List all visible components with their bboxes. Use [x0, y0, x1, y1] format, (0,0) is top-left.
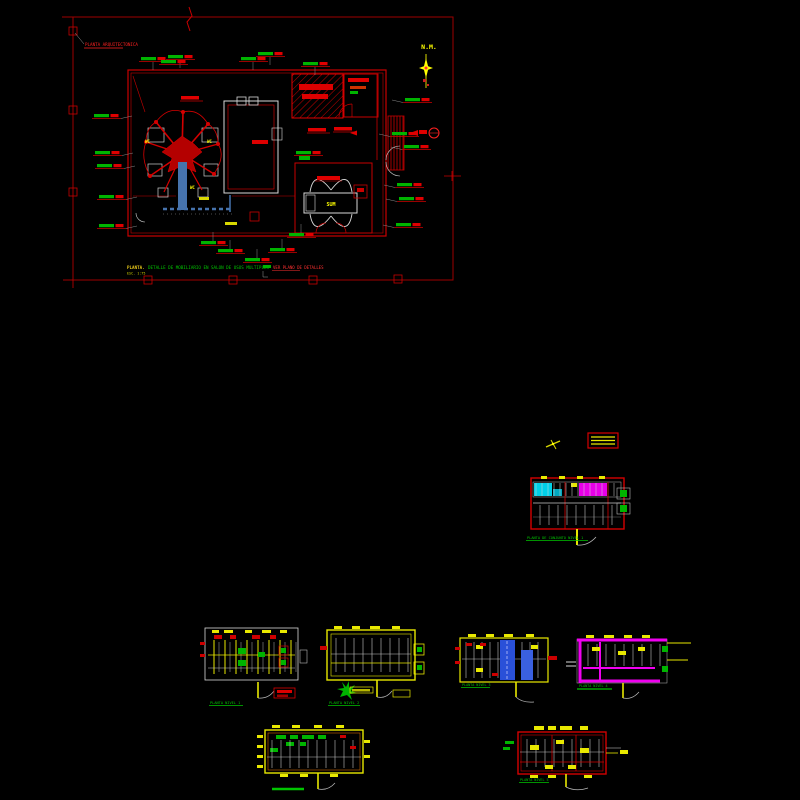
north-label: N.M.	[421, 43, 437, 51]
cad-rect	[548, 775, 556, 778]
cad-rect	[340, 735, 346, 738]
callout-leader	[383, 225, 394, 228]
cad-rect	[228, 105, 274, 189]
cad-rect	[230, 635, 236, 639]
cad-rect	[364, 755, 370, 758]
callout-text-red	[116, 224, 124, 227]
plan-e	[257, 725, 370, 789]
cad-rect	[417, 665, 422, 670]
door-arc	[316, 223, 326, 233]
cad-circle	[212, 172, 216, 176]
cad-circle	[216, 142, 220, 146]
cad-rect	[548, 656, 557, 660]
cad-rect	[592, 647, 600, 651]
cad-rect	[300, 742, 306, 746]
cad-rect	[318, 735, 326, 739]
cad-rect	[468, 634, 476, 637]
callout-text-red	[112, 151, 120, 154]
cad-rect	[302, 94, 328, 99]
cad-rect	[586, 635, 594, 638]
cad-rect	[476, 668, 483, 672]
callout-text-green	[241, 57, 256, 60]
callout-text-green	[141, 57, 156, 60]
cad-rect	[599, 476, 605, 479]
callout-text-green	[201, 241, 216, 244]
cad-rect	[263, 265, 271, 268]
callout-label	[392, 98, 432, 103]
callout-text-green	[405, 98, 420, 101]
plan-b: PLANTA NIVEL 2	[320, 626, 424, 706]
cad-rect	[306, 195, 315, 211]
callout-text-green	[289, 233, 304, 236]
cad-rect	[427, 84, 429, 86]
cad-rect	[534, 726, 544, 730]
plan-f-border	[518, 732, 606, 774]
cad-rect	[245, 630, 252, 633]
callout-leader	[121, 116, 132, 119]
main-title-scale: ESC. 1:75	[127, 272, 145, 276]
cad-rect	[300, 650, 307, 663]
arrow-symbol	[350, 131, 357, 136]
cad-rect	[584, 775, 592, 778]
cad-rect	[568, 765, 576, 769]
cad-circle	[181, 110, 185, 114]
callout-label	[199, 232, 228, 246]
door-arc	[336, 223, 346, 233]
cad-rect	[638, 647, 645, 651]
callout-text-red	[185, 55, 193, 58]
cad-rect	[352, 689, 370, 692]
sheet2-caption: PLANTA DE CONJUNTO NIVEL 1	[527, 536, 583, 540]
red-callout-label	[180, 96, 203, 101]
cad-rect	[252, 635, 260, 639]
cad-rect	[503, 747, 510, 750]
dining-room: SUM	[295, 156, 372, 233]
cad-rect	[560, 726, 572, 730]
plan-b-border	[327, 630, 415, 680]
cad-rect	[334, 626, 342, 629]
callout-text-green	[258, 52, 273, 55]
cad-rect	[620, 750, 628, 754]
cad-rect	[250, 212, 259, 221]
callout-label	[239, 57, 268, 70]
callout-text-red	[116, 195, 124, 198]
callout-leader	[392, 100, 403, 103]
callout-text-green	[168, 55, 183, 58]
plan-f: PLANTA NIVEL 5	[503, 726, 628, 790]
cad-rect	[419, 130, 427, 134]
callout-text-green	[245, 258, 260, 261]
cad-rect	[272, 128, 282, 140]
cad-rect	[200, 654, 205, 657]
cad-path	[516, 697, 534, 702]
fold-mark	[187, 7, 192, 31]
callout-text-green	[303, 62, 318, 65]
main-title-block: PLANTA.DETALLE DE MOBILIARIO EN SALON DE…	[127, 265, 324, 277]
cad-rect	[272, 725, 280, 728]
cad-rect	[299, 84, 333, 90]
cad-rect	[392, 626, 400, 629]
callout-text-green	[397, 183, 412, 186]
cad-path	[623, 692, 639, 698]
cad-rect	[500, 640, 515, 680]
main-title: DETALLE DE MOBILIARIO EN SALON DE USOS M…	[148, 265, 269, 270]
cad-rect	[480, 643, 486, 646]
cad-rect	[257, 735, 263, 738]
cad-rect	[238, 660, 246, 666]
cad-rect	[276, 735, 286, 739]
red-callout-label	[307, 128, 330, 133]
cad-rect	[350, 91, 358, 94]
wc-label: WC	[190, 185, 195, 190]
red-callout-label	[333, 127, 356, 132]
corner-label: PLANTA ARQUITECTONICA	[75, 33, 138, 48]
plan-d: PLANTA NIVEL 4	[566, 635, 691, 698]
cad-rect	[505, 741, 514, 744]
callout-text-red	[421, 145, 429, 148]
cad-rect	[158, 188, 168, 197]
cad-rect	[277, 695, 288, 698]
main-title-prefix: PLANTA.	[127, 265, 145, 270]
cad-path	[258, 691, 274, 698]
table-label: SUM	[326, 202, 335, 208]
cad-rect	[423, 79, 426, 82]
cad-line	[133, 76, 145, 112]
callout-label	[95, 164, 135, 169]
cad-rect	[270, 635, 276, 639]
cad-rect	[357, 188, 364, 192]
cad-rect	[348, 78, 369, 82]
cad-rect	[580, 726, 588, 730]
cad-path	[156, 110, 183, 122]
cad-rect	[277, 690, 292, 693]
cad-rect	[526, 634, 534, 637]
sheet2: PLANTA DE CONJUNTO NIVEL 1	[526, 433, 630, 545]
cad-rect	[662, 666, 668, 672]
callout-text-red	[414, 183, 422, 186]
plan-d-caption: PLANTA NIVEL 4	[579, 684, 608, 688]
callout-text-green	[99, 224, 114, 227]
cad-rect	[350, 86, 366, 89]
cad-rect	[280, 630, 287, 633]
plan-a-caption: PLANTA NIVEL 1	[210, 701, 240, 705]
callout-text-red	[235, 249, 243, 252]
cad-path	[183, 111, 208, 124]
plan-b-caption: PLANTA NIVEL 2	[329, 701, 359, 705]
callout-text-red	[218, 241, 226, 244]
callout-text-green	[270, 248, 285, 251]
cad-rect	[559, 476, 565, 479]
cad-rect	[270, 748, 278, 752]
cad-rect	[604, 635, 614, 638]
cad-path	[318, 783, 335, 789]
cad-rect	[212, 630, 219, 633]
callout-text-red	[306, 233, 314, 236]
cad-rect	[548, 726, 556, 730]
callout-label	[384, 183, 424, 188]
cad-circle	[552, 443, 554, 445]
callout-text-green	[218, 249, 233, 252]
cad-line	[75, 33, 84, 44]
north-arrow: N.M.	[419, 43, 437, 88]
cad-rect	[521, 650, 533, 680]
callout-text-red	[111, 114, 119, 117]
tree-symbol	[144, 110, 233, 214]
cad-path	[566, 787, 588, 790]
callout-label	[93, 151, 133, 156]
callout-text-green	[392, 132, 407, 135]
callout-text-green	[396, 223, 411, 226]
callout-text-green	[99, 195, 114, 198]
callout-text-green	[296, 151, 311, 154]
sheet-corner-label: PLANTA ARQUITECTONICA	[85, 42, 138, 47]
cad-path	[377, 691, 392, 697]
callout-text-red	[262, 258, 270, 261]
cad-rect	[200, 642, 205, 645]
wc-label: WC	[145, 139, 150, 144]
cad-circle	[206, 122, 210, 126]
callout-label	[383, 223, 423, 228]
cad-rect	[579, 483, 607, 496]
door-arc	[136, 213, 145, 222]
cad-drawing: PLANTA ARQUITECTONICASUMWCWCWCN.M.PLANTA…	[0, 0, 800, 800]
callout-text-red	[275, 52, 283, 55]
cad-rect	[302, 735, 314, 739]
callout-leader	[386, 199, 397, 202]
cad-viewport: PLANTA ARQUITECTONICASUMWCWCWCN.M.PLANTA…	[0, 0, 800, 800]
plan-c-caption: PLANTA NIVEL 3	[462, 683, 491, 687]
cad-rect	[455, 661, 460, 664]
callout-label	[294, 151, 323, 156]
cad-rect	[466, 643, 472, 646]
callout-label	[386, 197, 426, 202]
cad-rect	[225, 222, 237, 225]
callout-text-red	[181, 96, 199, 100]
cad-rect	[290, 735, 298, 739]
cad-circle	[425, 67, 428, 70]
cad-rect	[252, 140, 268, 144]
cad-path	[263, 271, 268, 277]
blue-trunk	[178, 162, 187, 210]
cad-rect	[486, 634, 494, 637]
cad-rect	[317, 176, 340, 180]
cad-rect	[620, 490, 627, 497]
plan-c: PLANTA NIVEL 3	[455, 634, 557, 702]
cad-rect	[198, 188, 208, 197]
cad-rect	[620, 505, 627, 512]
plan-d-border	[577, 639, 667, 683]
callout-text-green	[399, 197, 414, 200]
chair-arc	[331, 179, 352, 192]
cad-rect	[257, 745, 263, 748]
cad-rect	[553, 489, 562, 496]
cad-rect	[257, 765, 263, 768]
cad-rect	[577, 476, 583, 479]
cad-rect	[336, 725, 344, 728]
cad-rect	[214, 635, 222, 639]
cad-rect	[556, 740, 564, 744]
callout-text-red	[320, 62, 328, 65]
ref-label: VER PLANO DE DETALLES	[273, 265, 324, 270]
cad-rect	[281, 660, 286, 665]
cad-rect	[618, 651, 626, 655]
cad-rect	[370, 626, 380, 629]
cad-rect	[350, 746, 356, 749]
cad-rect	[262, 630, 271, 633]
cad-rect	[417, 647, 422, 652]
callout-text-red	[158, 57, 166, 60]
cad-rect	[364, 740, 370, 743]
cad-path	[214, 144, 221, 174]
cad-rect	[199, 197, 209, 200]
cad-rect	[492, 673, 498, 676]
cad-rect	[541, 476, 547, 479]
callout-text-red	[413, 223, 421, 226]
callout-text-red	[334, 127, 352, 131]
cad-rect	[281, 648, 286, 653]
cad-rect	[662, 646, 668, 652]
callout-text-red	[258, 57, 266, 60]
cad-rect	[330, 774, 338, 777]
cad-rect	[257, 755, 263, 758]
cad-rect	[534, 483, 552, 496]
cad-rect	[280, 774, 288, 777]
callout-text-green	[97, 164, 112, 167]
cad-rect	[314, 725, 322, 728]
cad-rect	[393, 690, 410, 697]
callout-text-red	[287, 248, 295, 251]
cad-rect	[292, 725, 300, 728]
cad-rect	[455, 647, 460, 650]
cad-rect	[624, 635, 632, 638]
callout-text-red	[308, 128, 326, 132]
chair-arc	[310, 179, 331, 192]
cad-rect	[352, 626, 360, 629]
callout-label	[92, 114, 132, 119]
cad-circle	[148, 174, 152, 178]
callout-label	[287, 224, 316, 238]
cad-rect	[531, 645, 538, 649]
cad-rect	[580, 748, 589, 753]
cad-path	[144, 142, 150, 176]
callout-label	[139, 57, 168, 70]
cad-rect	[504, 634, 513, 637]
callout-label	[159, 60, 188, 65]
plan-a: PLANTA NIVEL 1	[200, 628, 307, 706]
callout-text-red	[416, 197, 424, 200]
cad-rect	[545, 765, 553, 769]
callout-text-green	[404, 145, 419, 148]
cad-rect	[299, 156, 310, 160]
callout-text-red	[114, 164, 122, 167]
cad-rect	[300, 774, 308, 777]
callout-text-red	[313, 151, 321, 154]
callout-text-red	[178, 60, 186, 63]
stairs	[388, 116, 404, 170]
cad-rect	[530, 745, 539, 750]
callout-text-red	[422, 98, 430, 101]
callout-text-green	[95, 151, 110, 154]
plan-f-caption: PLANTA NIVEL 5	[520, 778, 549, 782]
cad-rect	[642, 635, 650, 638]
callout-label	[243, 249, 272, 263]
callout-label	[268, 239, 297, 253]
pool-room	[224, 101, 278, 193]
cad-circle	[154, 120, 158, 124]
cad-rect	[238, 648, 246, 654]
cad-rect	[320, 646, 327, 650]
cad-rect	[224, 630, 233, 633]
cad-rect	[394, 275, 402, 283]
callout-text-green	[161, 60, 176, 63]
wc-label: WC	[207, 139, 212, 144]
callout-text-green	[94, 114, 109, 117]
cad-rect	[258, 652, 265, 657]
callout-leader	[124, 166, 135, 169]
